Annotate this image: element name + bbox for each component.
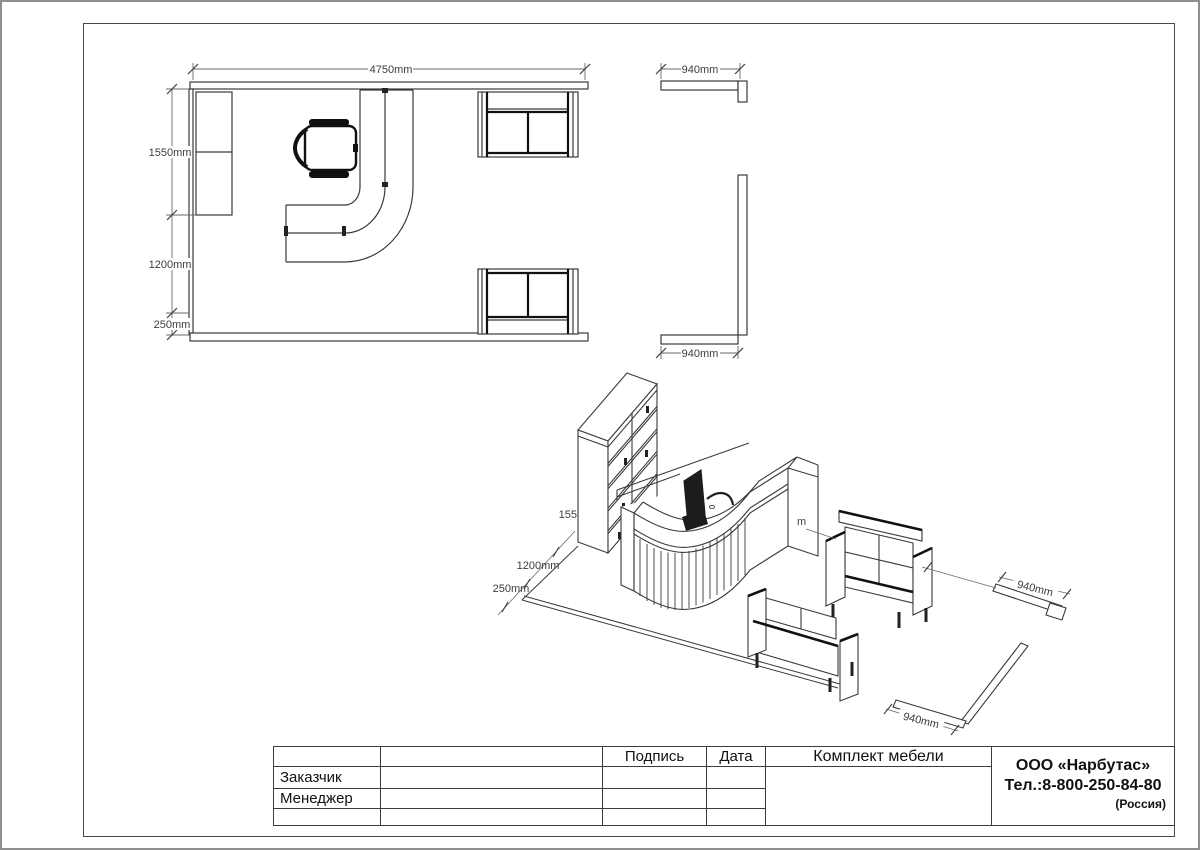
tb-cell-empty bbox=[707, 809, 765, 825]
tb-cell-manager-date bbox=[707, 789, 765, 809]
plan-walls bbox=[189, 81, 747, 344]
plan-wall-segment-bottom bbox=[661, 335, 738, 344]
company-phone: Тел.:8-800-250-84-80 bbox=[1000, 776, 1166, 796]
plan-dim-1200: 1200mm bbox=[149, 259, 192, 271]
iso-dim-1200: 1200mm bbox=[517, 560, 560, 572]
plan-dimensions: 4750mm 1550mm 1200mm 250mm 940mm 940mm bbox=[149, 63, 745, 360]
iso-wall-segment-upper: 940mm bbox=[993, 572, 1071, 620]
plan-wall-right bbox=[738, 175, 747, 335]
plan-dim-1550: 1550mm bbox=[149, 147, 192, 159]
company-name: ООО «Нарбутас» bbox=[1000, 756, 1166, 776]
plan-sofa-bottom bbox=[478, 269, 578, 334]
tb-header-signature: Подпись bbox=[603, 747, 707, 767]
tb-cell-empty bbox=[603, 809, 707, 825]
tb-cell-manager-name bbox=[381, 789, 603, 809]
tb-header-date: Дата bbox=[707, 747, 765, 767]
project-title: Комплект мебели bbox=[766, 747, 991, 767]
tb-cell-customer-signature bbox=[603, 767, 707, 789]
plan-office-chair bbox=[295, 119, 358, 178]
iso-sofa-1-legs bbox=[833, 604, 926, 628]
plan-cabinet bbox=[196, 92, 232, 215]
title-block-project: Комплект мебели bbox=[766, 746, 992, 826]
plan-wall-left bbox=[189, 89, 193, 335]
tb-cell-empty bbox=[274, 747, 381, 767]
tb-label-manager: Менеджер bbox=[274, 789, 381, 809]
tb-cell-empty bbox=[274, 809, 381, 825]
plan-sofa-top bbox=[478, 92, 578, 157]
isometric-view: 250mm 1200mm 155 bbox=[493, 373, 1071, 735]
iso-wall-segment-lower: 940mm bbox=[884, 643, 1028, 735]
chair-armrest-top bbox=[309, 119, 349, 126]
chair-armrest-bottom bbox=[309, 171, 349, 178]
iso-dim-250: 250mm bbox=[493, 583, 530, 595]
drawing-canvas: 4750mm 1550mm 1200mm 250mm 940mm 940mm 2… bbox=[0, 0, 1200, 850]
plan-dim-940-bottom: 940mm bbox=[682, 348, 719, 360]
tb-cell-empty bbox=[381, 809, 603, 825]
plan-wall-top bbox=[190, 82, 588, 89]
floor-plan: 4750mm 1550mm 1200mm 250mm 940mm 940mm bbox=[149, 63, 747, 360]
iso-sofa-1 bbox=[826, 511, 932, 628]
plan-dim-ticks bbox=[167, 64, 745, 358]
iso-dim-fragment: m bbox=[797, 516, 806, 528]
title-block-table: Подпись Дата Заказчик Менеджер bbox=[273, 746, 766, 826]
plan-dim-940-top: 940mm bbox=[682, 64, 719, 76]
plan-dim-width: 4750mm bbox=[370, 64, 413, 76]
title-block-company: ООО «Нарбутас» Тел.:8-800-250-84-80 (Рос… bbox=[992, 746, 1175, 826]
plan-dim-250: 250mm bbox=[154, 319, 191, 331]
drawing-sheet: 4750mm 1550mm 1200mm 250mm 940mm 940mm 2… bbox=[0, 0, 1200, 850]
plan-wall-stub bbox=[738, 81, 747, 102]
iso-dim-155-partial: 155 bbox=[559, 509, 577, 521]
tb-cell-customer-name bbox=[381, 767, 603, 789]
tb-cell-empty bbox=[381, 747, 603, 767]
plan-wall-segment-top bbox=[661, 81, 738, 90]
tb-label-customer: Заказчик bbox=[274, 767, 381, 789]
tb-cell-customer-date bbox=[707, 767, 765, 789]
company-country: (Россия) bbox=[1000, 796, 1166, 812]
tb-cell-manager-signature bbox=[603, 789, 707, 809]
iso-sofa-2 bbox=[748, 589, 858, 701]
